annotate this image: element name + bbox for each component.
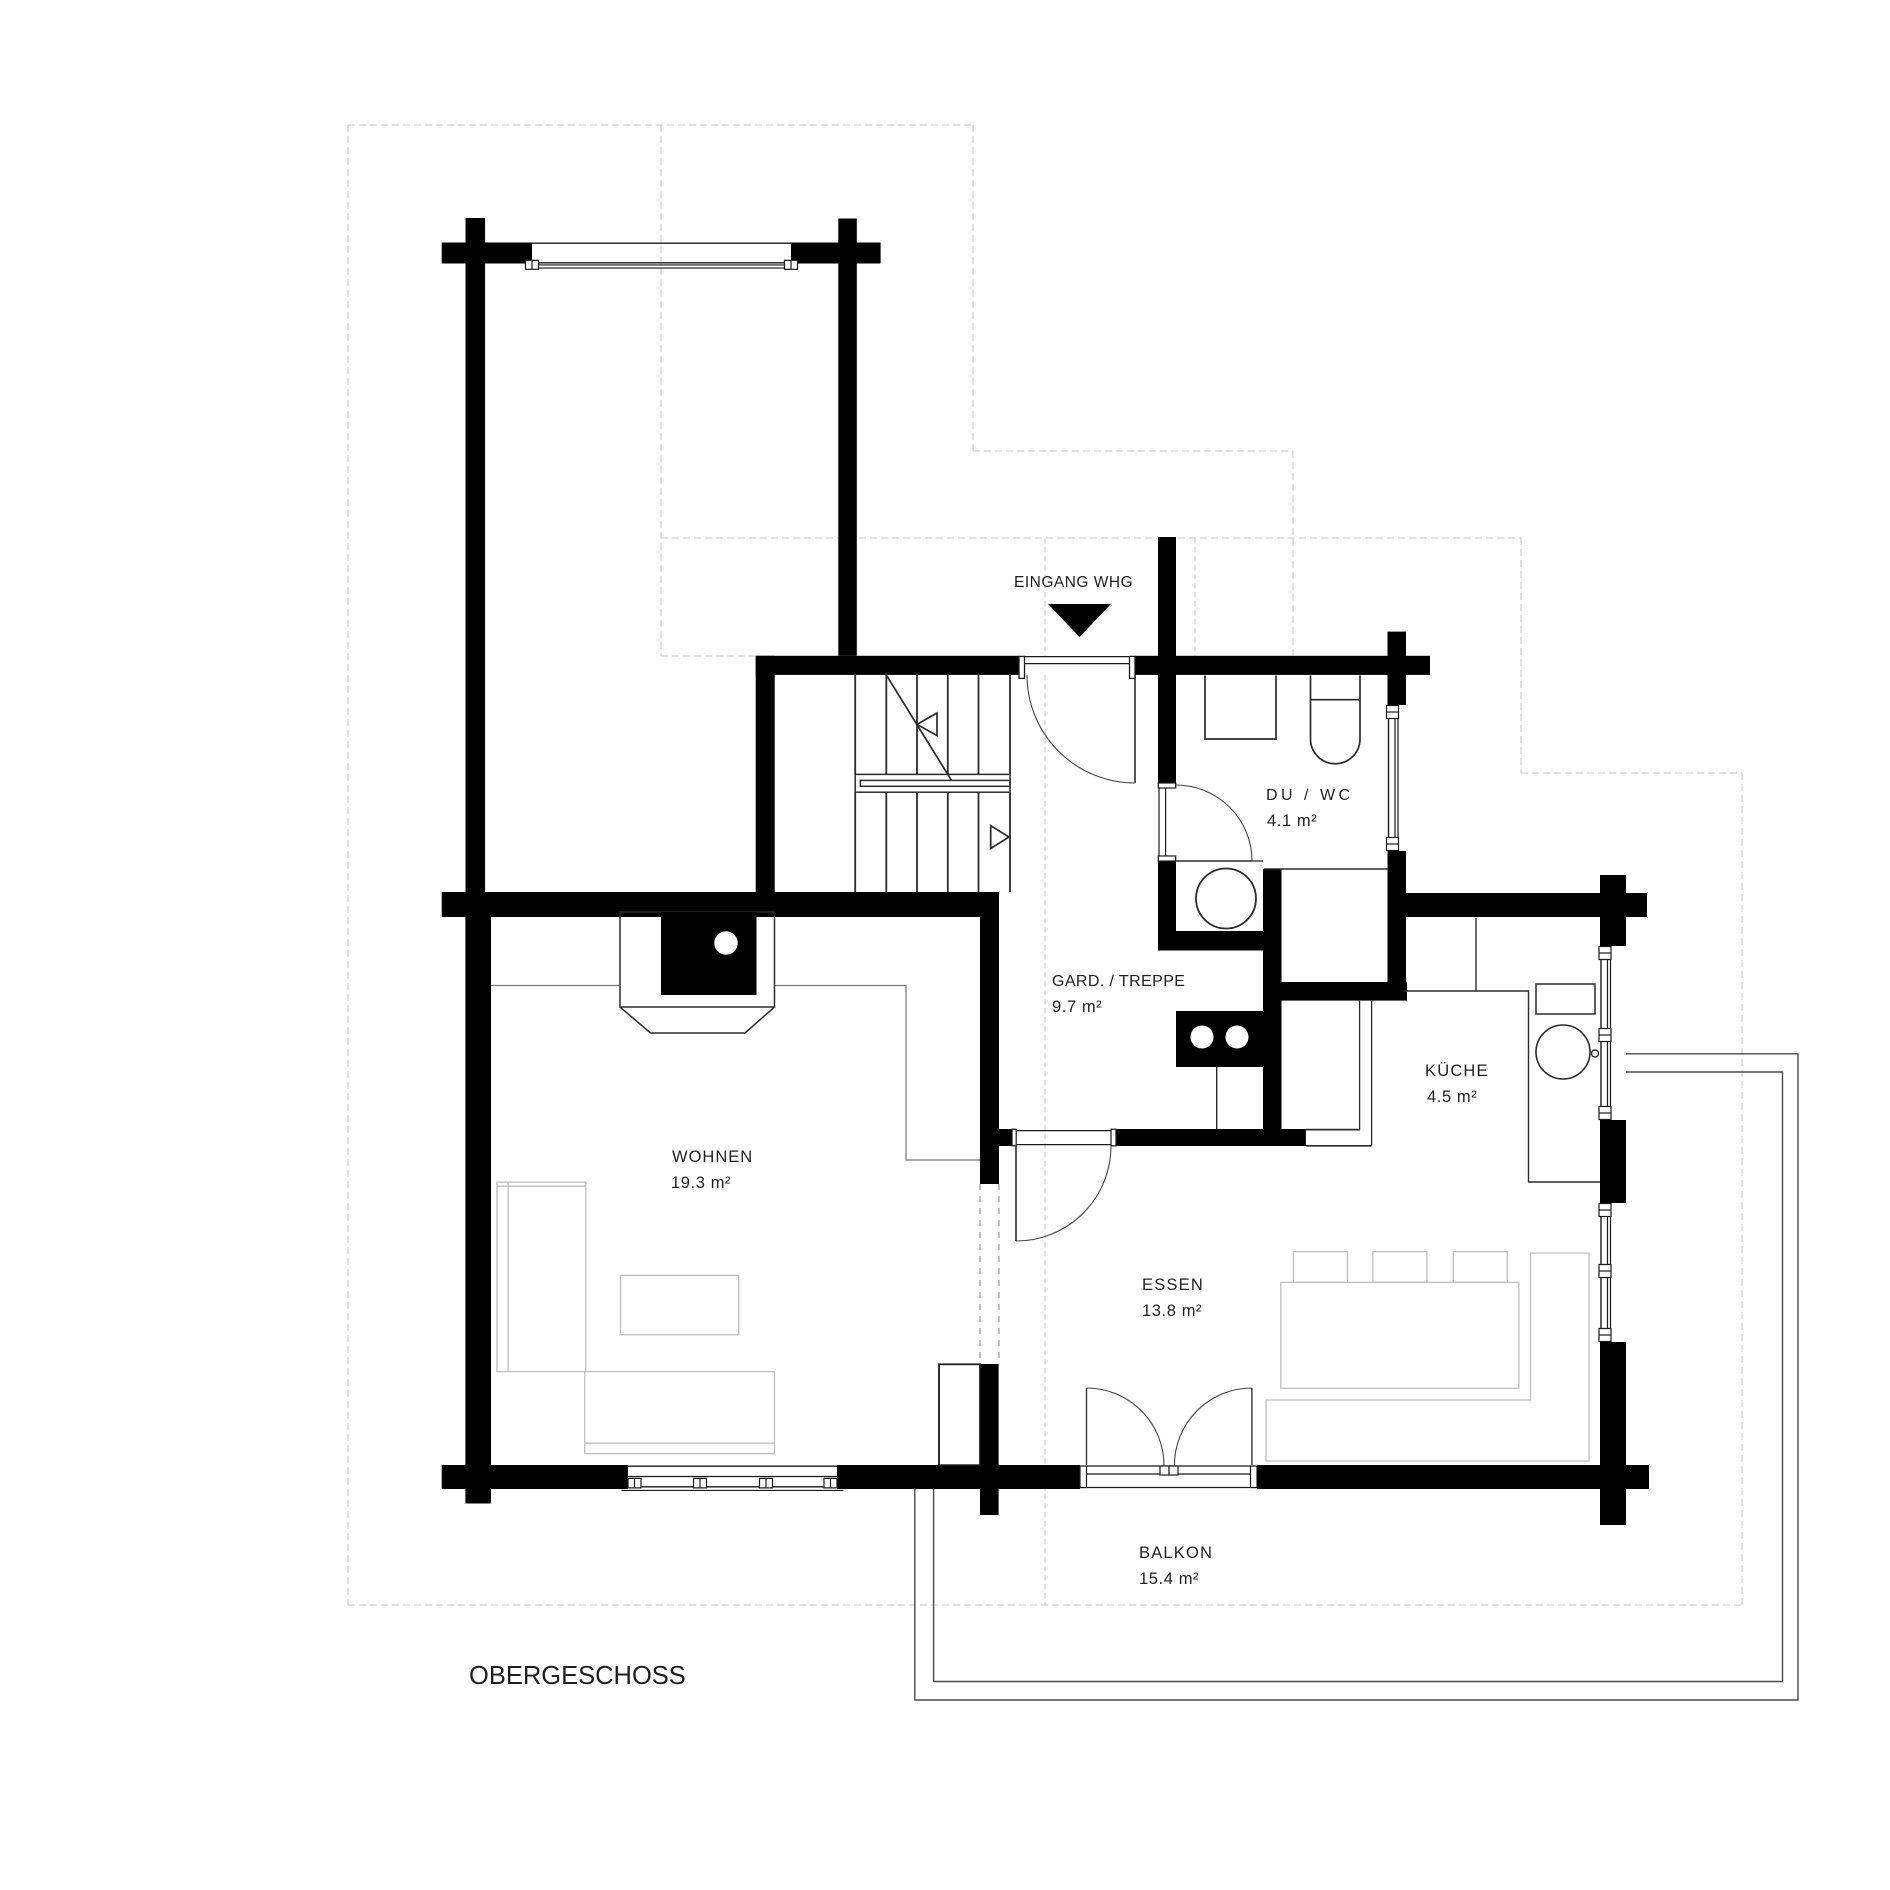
svg-text:13.8 m²: 13.8 m² bbox=[1142, 1302, 1202, 1320]
svg-text:EINGANG WHG: EINGANG WHG bbox=[1014, 574, 1133, 591]
svg-text:GARD. / TREPPE: GARD. / TREPPE bbox=[1052, 973, 1185, 990]
svg-text:KÜCHE: KÜCHE bbox=[1425, 1062, 1489, 1080]
svg-text:OBERGESCHOSS: OBERGESCHOSS bbox=[469, 1662, 686, 1690]
svg-text:ESSEN: ESSEN bbox=[1142, 1276, 1204, 1294]
svg-text:BALKON: BALKON bbox=[1139, 1544, 1213, 1562]
svg-text:19.3 m²: 19.3 m² bbox=[671, 1174, 731, 1192]
svg-text:9.7 m²: 9.7 m² bbox=[1052, 998, 1102, 1016]
svg-text:4.1 m²: 4.1 m² bbox=[1267, 812, 1317, 830]
svg-text:4.5 m²: 4.5 m² bbox=[1427, 1088, 1477, 1106]
svg-text:DU / WC: DU / WC bbox=[1266, 787, 1354, 804]
svg-text:WOHNEN: WOHNEN bbox=[672, 1148, 753, 1166]
svg-text:15.4 m²: 15.4 m² bbox=[1139, 1570, 1199, 1588]
